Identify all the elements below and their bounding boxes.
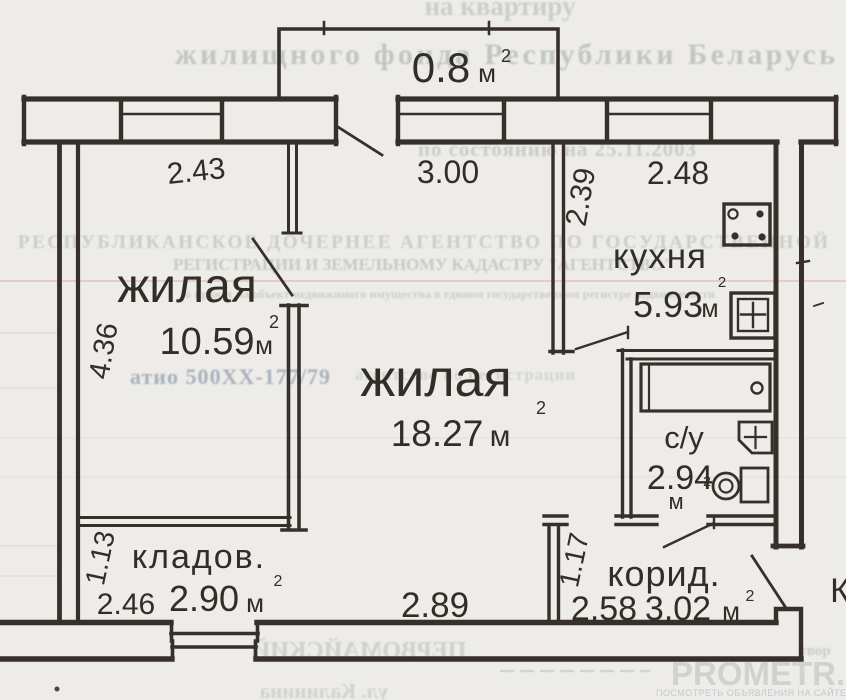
svg-text:3.02: 3.02: [645, 590, 711, 628]
svg-text:2: 2: [746, 588, 755, 605]
svg-text:2: 2: [274, 573, 283, 590]
svg-text:м: м: [701, 295, 718, 323]
svg-text:м: м: [246, 588, 264, 618]
svg-text:м: м: [490, 420, 511, 453]
svg-text:на квартиру: на квартиру: [424, 0, 576, 21]
svg-text:жилая: жилая: [117, 260, 257, 313]
svg-text:м: м: [478, 58, 496, 88]
svg-text:ПОСМОТРЕТЬ ОБЪЯВЛЕНИЯ НА САЙТЕ: ПОСМОТРЕТЬ ОБЪЯВЛЕНИЯ НА САЙТЕ: [656, 687, 846, 698]
svg-text:0.8: 0.8: [412, 44, 470, 91]
svg-text:жилая: жилая: [360, 350, 511, 408]
svg-text:2: 2: [269, 312, 279, 332]
svg-text:ул. Калинина: ул. Калинина: [259, 679, 388, 700]
svg-text:2.90: 2.90: [169, 578, 239, 619]
svg-text:PROMETR.by: PROMETR.by: [671, 655, 846, 692]
svg-text:2.58: 2.58: [571, 590, 637, 628]
svg-text:2.43: 2.43: [165, 152, 227, 191]
svg-text:5.93: 5.93: [633, 284, 703, 325]
svg-text:18.27: 18.27: [391, 413, 484, 454]
svg-text:кухня: кухня: [613, 237, 707, 276]
svg-text:2.48: 2.48: [647, 155, 709, 191]
svg-text:корид.: корид.: [607, 553, 720, 594]
svg-text:с/у: с/у: [664, 420, 704, 455]
svg-text:м: м: [255, 330, 273, 360]
svg-text:м: м: [668, 489, 683, 514]
svg-text:2.46: 2.46: [97, 588, 155, 621]
svg-text:К: К: [830, 572, 846, 610]
svg-text:2.89: 2.89: [401, 586, 469, 625]
svg-text:2: 2: [703, 473, 711, 489]
svg-text:10.59: 10.59: [159, 321, 254, 363]
svg-text:м: м: [722, 596, 740, 626]
svg-text:3.00: 3.00: [417, 154, 479, 190]
svg-text:2: 2: [718, 274, 726, 291]
svg-text:2: 2: [536, 398, 546, 418]
svg-text:кладов.: кладов.: [132, 538, 266, 576]
svg-text:2: 2: [501, 46, 511, 66]
